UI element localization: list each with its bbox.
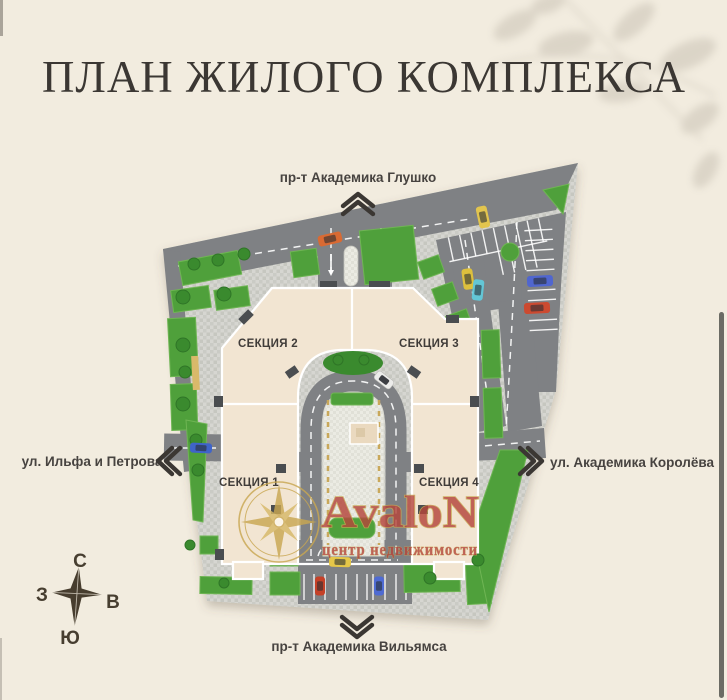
compass-east: В — [106, 592, 120, 613]
watermark-name: AvaloN — [321, 486, 479, 537]
building-tab-left — [233, 562, 263, 579]
car-blue-left-entrance — [190, 442, 212, 453]
compass-west: З — [36, 585, 48, 606]
page-title: ПЛАН ЖИЛОГО КОМПЛЕКСА — [42, 52, 686, 102]
compass-rose-logo-icon — [239, 482, 319, 562]
watermark-tagline: центр недвижимости — [322, 540, 478, 559]
photo-edge-artifact-bottom — [0, 638, 2, 700]
compass-north: С — [73, 551, 87, 572]
section-2-label: СЕКЦИЯ 2 — [238, 338, 298, 350]
site-plan-page: ПЛАН ЖИЛОГО КОМПЛЕКСА — [0, 0, 727, 700]
section-3-label: СЕКЦИЯ 3 — [399, 338, 459, 350]
car-red-bottom — [315, 577, 325, 596]
street-left-label: ул. Ильфа и Петрова — [22, 454, 163, 469]
car-blue-bottom — [374, 577, 384, 596]
pavilion-detail — [356, 428, 365, 437]
car-cyan — [471, 279, 484, 301]
car-blue-right — [527, 275, 554, 287]
building-tab-right — [434, 562, 464, 579]
street-bottom-label: пр-т Академика Вильямса — [271, 639, 447, 654]
car-red-right — [524, 302, 551, 314]
photo-edge-artifact-top — [0, 0, 3, 36]
compass-south: Ю — [60, 628, 80, 649]
street-right-label: ул. Академика Королёва — [550, 455, 714, 470]
site-plan-canvas: ПЛАН ЖИЛОГО КОМПЛЕКСА — [0, 0, 727, 700]
courtyard-green-arc — [323, 351, 383, 375]
entrance-median-island — [344, 246, 358, 286]
street-top-label: пр-т Академика Глушко — [280, 170, 436, 185]
scrollbar-thumb[interactable] — [719, 312, 724, 698]
